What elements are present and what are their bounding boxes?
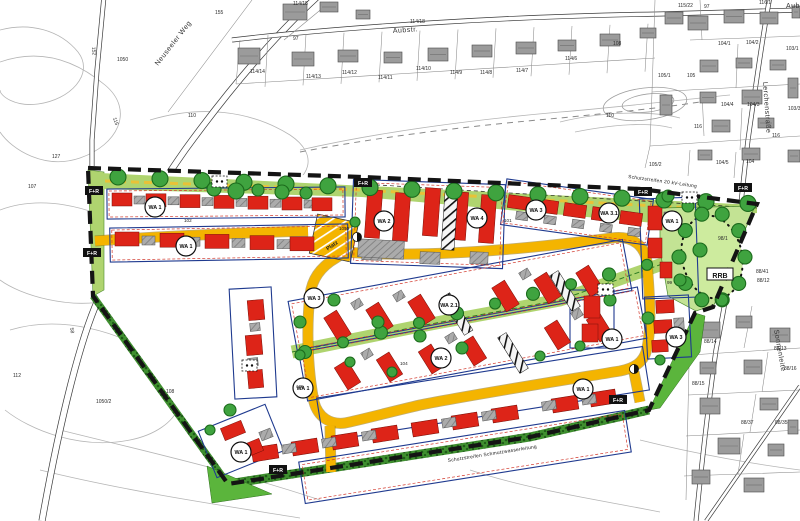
- tree-icon: [614, 190, 630, 206]
- tree-icon: [674, 274, 686, 286]
- road-number: 99: [667, 280, 673, 285]
- zone-label: WA 1: [180, 244, 193, 250]
- tree-icon: [642, 312, 654, 324]
- tree-icon: [404, 181, 420, 197]
- fr-marker-label: F+R: [738, 186, 748, 192]
- tree-icon: [604, 294, 616, 306]
- garage-parking: [361, 430, 376, 441]
- playground-dot: [607, 288, 609, 290]
- parcel-number: 104/3: [747, 102, 760, 108]
- tree-icon: [488, 185, 504, 201]
- garage-parking: [277, 240, 290, 249]
- planned-building: [282, 197, 302, 210]
- zone-label: WA 2: [378, 219, 391, 225]
- road-stub1: [330, 426, 331, 472]
- parcel-number: 1050: [117, 57, 128, 63]
- tree-icon: [695, 207, 709, 221]
- tree-icon: [715, 207, 729, 221]
- tree-icon: [295, 350, 305, 360]
- tree-icon: [252, 184, 264, 196]
- site-plan-map: F+RF+RF+RF+RF+RF+RF+RWA 1WA 1WA 2WA 4WA …: [0, 0, 800, 521]
- parcel-number: 103/1: [786, 46, 799, 52]
- parcel-number: 88/41: [756, 269, 769, 275]
- fr-marker-label: F+R: [89, 189, 99, 195]
- contour-line: [0, 27, 83, 105]
- tree-icon: [456, 342, 468, 354]
- planned-building: [656, 300, 675, 314]
- parcel-number: 114/6: [565, 56, 577, 62]
- garage-parking: [134, 196, 145, 204]
- parcel-number: 114/13: [306, 74, 321, 80]
- garage-parking: [321, 437, 336, 448]
- garage-parking: [470, 252, 488, 265]
- zone-label: WA 1: [606, 337, 619, 343]
- road-casing: [232, 10, 800, 40]
- tree-icon: [655, 355, 665, 365]
- fr-marker-label: F+R: [613, 398, 623, 404]
- parcel-number: 88/15: [692, 381, 705, 387]
- tree-icon: [575, 341, 585, 351]
- road-number: 1050: [339, 226, 350, 231]
- parcel-number: 104/2: [746, 40, 759, 46]
- tree-icon: [275, 185, 289, 199]
- tree-icon: [414, 330, 426, 342]
- planned-building: [180, 195, 200, 208]
- tree-icon: [603, 268, 616, 281]
- planned-building: [584, 296, 600, 318]
- zone-label: WA 3: [308, 296, 321, 302]
- parcel-number: 114/7: [516, 68, 528, 74]
- tree-icon: [387, 367, 397, 377]
- road-number: 105: [296, 384, 304, 389]
- parcel-number: 114/8: [480, 70, 492, 76]
- rrb-label: RRB: [712, 273, 727, 280]
- drainage-dashed-line: [300, 102, 700, 152]
- playground-dot: [602, 288, 604, 290]
- parcel-number: 105/2: [649, 162, 662, 168]
- planned-building: [205, 234, 229, 248]
- tree-icon: [535, 351, 545, 361]
- planned-building: [652, 340, 669, 353]
- garage-parking: [600, 223, 613, 233]
- development-plan-canvas: F+RF+RF+RF+RF+RF+RF+RWA 1WA 1WA 2WA 4WA …: [0, 0, 800, 521]
- tree-icon: [527, 287, 540, 300]
- playground-icon: [598, 284, 613, 295]
- parcel-number: 110: [188, 113, 196, 119]
- parcel-number: 114/9: [450, 70, 462, 76]
- tree-icon: [672, 250, 686, 264]
- tree-icon: [152, 171, 168, 187]
- parcel-number: 108: [613, 41, 622, 47]
- parcel-number: 152: [90, 47, 97, 56]
- planned-building: [250, 236, 274, 250]
- garage-parking: [236, 198, 247, 206]
- zone-label: WA 1: [235, 450, 248, 456]
- planned-building: [422, 188, 440, 237]
- zone-label: WA 1: [577, 387, 590, 393]
- garage-parking: [250, 323, 261, 332]
- parcel-number: 97: [293, 36, 299, 42]
- parcel-number: 105: [687, 73, 696, 79]
- planned-building: [392, 193, 410, 242]
- tree-icon: [695, 293, 709, 307]
- parcel-number: 1050/2: [96, 399, 112, 405]
- tree-icon: [642, 259, 653, 270]
- tree-icon: [414, 317, 425, 328]
- parcel-number: 155: [215, 10, 224, 16]
- tree-icon: [693, 243, 707, 257]
- parcel-number: 104: [746, 159, 755, 165]
- tree-icon: [228, 183, 244, 199]
- garage-parking: [441, 417, 456, 428]
- zone-label: WA 2.1: [440, 303, 457, 309]
- parcel-number: 104/5: [716, 160, 729, 166]
- planned-building: [660, 262, 672, 278]
- planned-building: [247, 369, 264, 388]
- garage-parking: [358, 239, 405, 259]
- parcel-number: 107: [28, 184, 37, 190]
- garage-parking: [281, 443, 296, 454]
- zone-label: WA 3: [530, 208, 543, 214]
- garage-parking: [420, 252, 440, 265]
- playground-dot: [251, 364, 253, 366]
- tree-icon: [328, 294, 340, 306]
- parcel-number: 115/22: [678, 3, 693, 9]
- street-name: Aubstr.: [393, 26, 419, 35]
- parcel-number: 103/3: [788, 106, 800, 112]
- tree-icon: [566, 279, 577, 290]
- street-name: Neuseeler Weg: [154, 20, 193, 67]
- road-number: 104: [400, 361, 408, 366]
- parcel-number: 108: [166, 389, 175, 395]
- parcel-number: 114/14: [250, 69, 265, 75]
- zone-label: WA 1: [149, 205, 162, 211]
- tree-icon: [205, 425, 215, 435]
- playground-dot: [221, 180, 223, 182]
- contour-line: [0, 56, 120, 162]
- tree-icon: [338, 337, 349, 348]
- parcel-number: 110: [606, 113, 614, 119]
- playground-icon: [212, 176, 227, 187]
- parcel-number: 116/1: [759, 0, 771, 6]
- parcel-number: 88/35: [775, 420, 788, 426]
- parcel-number: 114/12: [342, 70, 357, 76]
- road-stub2: [634, 372, 640, 402]
- tree-icon: [732, 276, 746, 290]
- garage-parking: [628, 227, 641, 237]
- tree-icon: [350, 217, 360, 227]
- planned-building: [248, 196, 268, 209]
- planned-building: [247, 299, 265, 320]
- garage-parking: [572, 219, 585, 229]
- playground-dot: [246, 364, 248, 366]
- zone-label: WA 3.1: [600, 211, 617, 217]
- parcel-number: 88/14: [704, 339, 717, 345]
- planned-building: [619, 211, 643, 227]
- parcel-number: 114/11: [378, 75, 393, 81]
- zone-label: WA 1: [666, 219, 679, 225]
- parcel-number: 97: [704, 4, 710, 10]
- tree-icon: [300, 187, 312, 199]
- garage-parking: [232, 238, 245, 247]
- garage-parking: [481, 410, 496, 421]
- garage-parking: [168, 197, 179, 205]
- planned-building: [648, 238, 662, 258]
- parcel-number: 98/1: [718, 236, 728, 242]
- parcel-number: 105/1: [658, 73, 671, 79]
- tree-icon: [446, 183, 462, 199]
- planned-building: [582, 324, 598, 342]
- planned-building: [245, 334, 263, 355]
- parcel-number: 88/37: [741, 420, 754, 426]
- garage-parking: [270, 199, 281, 207]
- zone-label: WA 3: [670, 335, 683, 341]
- parcel-number: 112: [13, 373, 21, 379]
- parcel-number: 114/18: [410, 19, 425, 25]
- parcel-number: 104/4: [721, 102, 734, 108]
- tree-icon: [738, 250, 752, 264]
- playground-icon: [242, 360, 257, 371]
- planned-building: [648, 206, 662, 230]
- road-number: 102: [184, 218, 192, 223]
- fr-marker-label: F+R: [273, 468, 283, 474]
- tree-icon: [372, 316, 384, 328]
- planned-building: [290, 237, 314, 251]
- tree-icon: [110, 169, 126, 185]
- parcel-number: 114/15: [293, 1, 308, 7]
- playground-dot: [691, 196, 693, 198]
- zone-label: WA 4: [471, 216, 484, 222]
- garage-parking: [544, 215, 557, 225]
- parcel-number: 114/10: [416, 66, 431, 72]
- fr-marker-label: F+R: [638, 190, 648, 196]
- street-name: Aubstr.: [786, 3, 800, 10]
- parcel-number: 58: [68, 327, 75, 334]
- garage-parking: [202, 198, 213, 206]
- planned-building: [115, 232, 139, 246]
- playground-dot: [686, 196, 688, 198]
- zone-label: WA 2: [435, 356, 448, 362]
- parcel-number: 116: [694, 124, 702, 130]
- parcel-number: 127: [52, 154, 61, 160]
- fr-marker-label: F+R: [87, 251, 97, 257]
- fr-marker-label: F+R: [358, 181, 368, 187]
- parcel-number: 116: [772, 133, 780, 139]
- parcel-number: 88/12: [757, 278, 770, 284]
- road-number: 101: [504, 218, 512, 223]
- parcel-number: 104/1: [718, 41, 731, 47]
- tree-icon: [345, 357, 355, 367]
- tree-icon: [490, 298, 501, 309]
- playground-dot: [216, 180, 218, 182]
- garage-parking: [541, 400, 556, 411]
- tree-icon: [572, 188, 588, 204]
- tree-icon: [320, 178, 336, 194]
- planned-building: [112, 193, 132, 206]
- planned-building: [312, 198, 332, 211]
- tree-icon: [224, 404, 236, 416]
- planned-building: [563, 203, 587, 219]
- tree-icon: [294, 316, 306, 328]
- playground-icon: [682, 192, 697, 203]
- garage-parking: [142, 236, 155, 245]
